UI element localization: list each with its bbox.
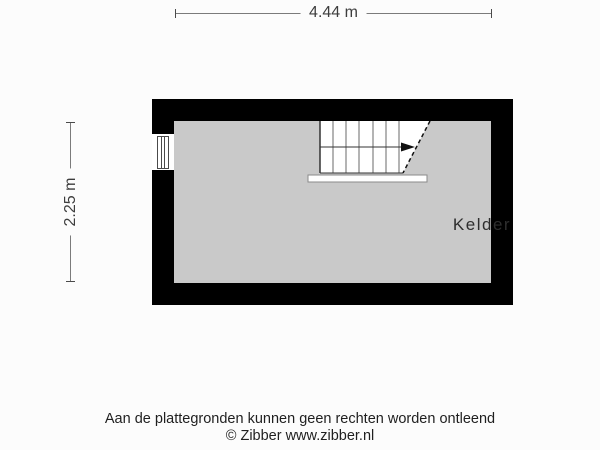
width-dimension-label: 4.44 m xyxy=(300,4,367,22)
width-dimension-tick-left xyxy=(175,9,176,18)
footer-copyright: © Zibber www.zibber.nl xyxy=(0,428,600,444)
width-dimension-tick-right xyxy=(491,9,492,18)
room-label-kelder: Kelder xyxy=(392,215,572,235)
height-dimension-tick-top xyxy=(66,122,75,123)
height-dimension-label: 2.25 m xyxy=(62,169,80,236)
window-icon xyxy=(152,134,174,170)
window-pane-line xyxy=(164,137,165,168)
floorplan-page: 4.44 m 2.25 m Kelder xyxy=(0,0,600,450)
stairs-icon xyxy=(300,121,436,185)
window-pane-line xyxy=(161,137,162,168)
height-dimension: 2.25 m xyxy=(62,122,80,282)
window-frame xyxy=(157,136,169,169)
width-dimension: 4.44 m xyxy=(175,4,492,22)
footer-disclaimer: Aan de plattegronden kunnen geen rechten… xyxy=(0,411,600,427)
height-dimension-tick-bottom xyxy=(66,281,75,282)
